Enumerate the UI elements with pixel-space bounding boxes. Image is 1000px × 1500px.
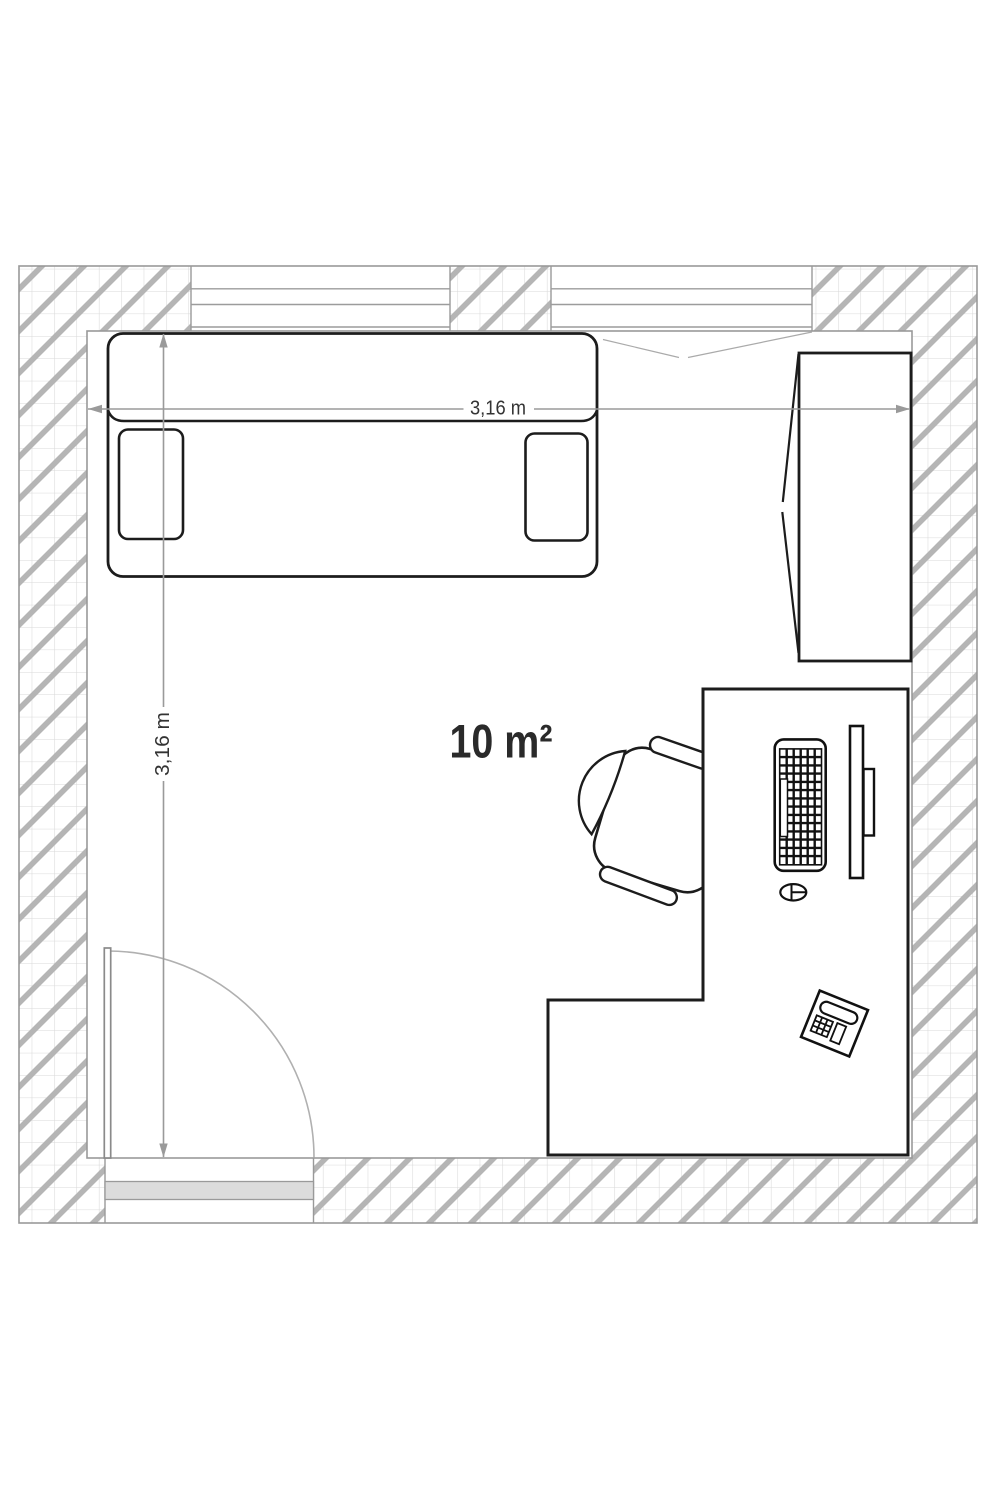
svg-text:3,16 m: 3,16 m — [152, 712, 174, 776]
svg-text:3,16 m: 3,16 m — [470, 398, 526, 420]
svg-text:10 m²: 10 m² — [450, 715, 553, 768]
